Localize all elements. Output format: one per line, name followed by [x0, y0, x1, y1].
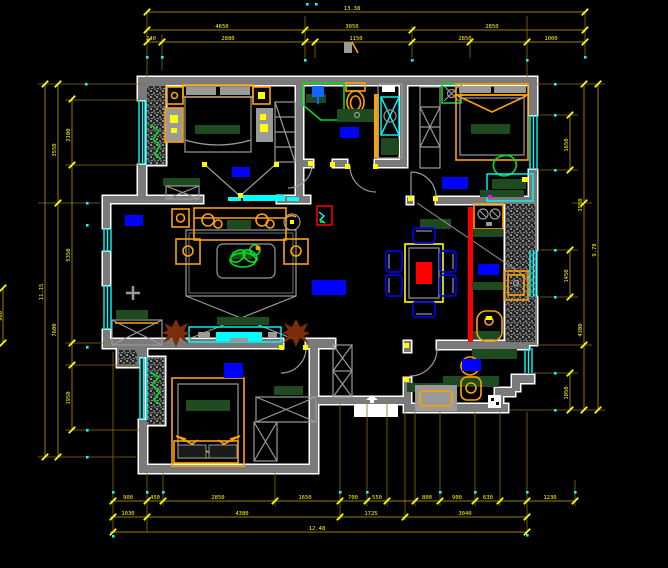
room-label[interactable] — [442, 177, 468, 189]
svg-text:12.48: 12.48 — [309, 526, 326, 532]
room-label[interactable] — [462, 359, 481, 371]
entry-text-block — [354, 404, 398, 417]
svg-text:1000: 1000 — [544, 36, 557, 42]
bed-runner — [186, 400, 230, 411]
svg-text:900: 900 — [452, 495, 462, 501]
bench — [472, 349, 517, 359]
svg-text:900: 900 — [123, 495, 133, 501]
svg-text:2850: 2850 — [211, 495, 224, 501]
svg-text:1230: 1230 — [543, 495, 556, 501]
room-label[interactable] — [232, 167, 250, 177]
svg-text:1725: 1725 — [364, 511, 377, 517]
svg-text:2850: 2850 — [485, 24, 498, 30]
svg-text:2880: 2880 — [221, 36, 234, 42]
shower-head-icon — [312, 86, 324, 97]
svg-text:1650: 1650 — [298, 495, 311, 501]
svg-text:5350: 5350 — [66, 248, 72, 261]
svg-text:1650: 1650 — [564, 138, 570, 151]
svg-text:1450: 1450 — [564, 269, 570, 282]
svg-text:4380: 4380 — [235, 511, 248, 517]
room-label[interactable] — [125, 215, 143, 226]
room-label[interactable] — [224, 363, 243, 378]
sliding-door — [468, 207, 473, 342]
svg-text:550: 550 — [372, 495, 382, 501]
svg-text:4650: 4650 — [215, 24, 228, 30]
shoe-cabinet — [415, 385, 457, 411]
svg-text:1150: 1150 — [349, 36, 362, 42]
svg-text:3950: 3950 — [578, 198, 584, 211]
svg-text:240: 240 — [146, 36, 156, 42]
tv — [243, 195, 285, 201]
svg-text:9.78: 9.78 — [592, 243, 598, 256]
svg-text:3040: 3040 — [458, 511, 471, 517]
sofa-cushion — [227, 220, 251, 229]
svg-text:13.38: 13.38 — [344, 6, 361, 12]
svg-text:7600: 7600 — [52, 323, 58, 336]
svg-text:1030: 1030 — [121, 511, 134, 517]
floor-plan-drawing[interactable]: 13.38 4650 3050 2850 240 2880 1150 2850 … — [0, 0, 668, 568]
svg-text:3550: 3550 — [52, 143, 58, 156]
svg-text:4300: 4300 — [578, 323, 584, 336]
room-label[interactable] — [478, 264, 499, 275]
cad-canvas[interactable]: 13.38 4650 3050 2850 240 2880 1150 2850 … — [0, 0, 668, 568]
svg-text:1950: 1950 — [66, 391, 72, 404]
sink-icon — [504, 271, 528, 300]
svg-text:11.15: 11.15 — [39, 284, 45, 301]
svg-text:2850: 2850 — [458, 36, 471, 42]
dresser — [165, 108, 183, 142]
floor-drain-icon — [488, 395, 501, 408]
vanity-counter — [337, 109, 376, 122]
svg-text:1050: 1050 — [564, 386, 570, 399]
media-shelf — [217, 317, 269, 325]
svg-text:450: 450 — [150, 495, 160, 501]
counter — [472, 282, 503, 290]
svg-text:800: 800 — [422, 495, 432, 501]
counter — [473, 229, 503, 237]
bed-runner — [471, 124, 510, 134]
svg-text:700: 700 — [348, 495, 358, 501]
svg-text:3050: 3050 — [345, 24, 358, 30]
room-label[interactable] — [340, 127, 359, 138]
bed-runner — [195, 125, 240, 134]
svg-text:900: 900 — [0, 311, 4, 321]
svg-text:2100: 2100 — [66, 128, 72, 141]
bench-cushion — [163, 178, 200, 186]
svg-text:630: 630 — [483, 495, 493, 501]
room-label[interactable] — [312, 280, 346, 295]
